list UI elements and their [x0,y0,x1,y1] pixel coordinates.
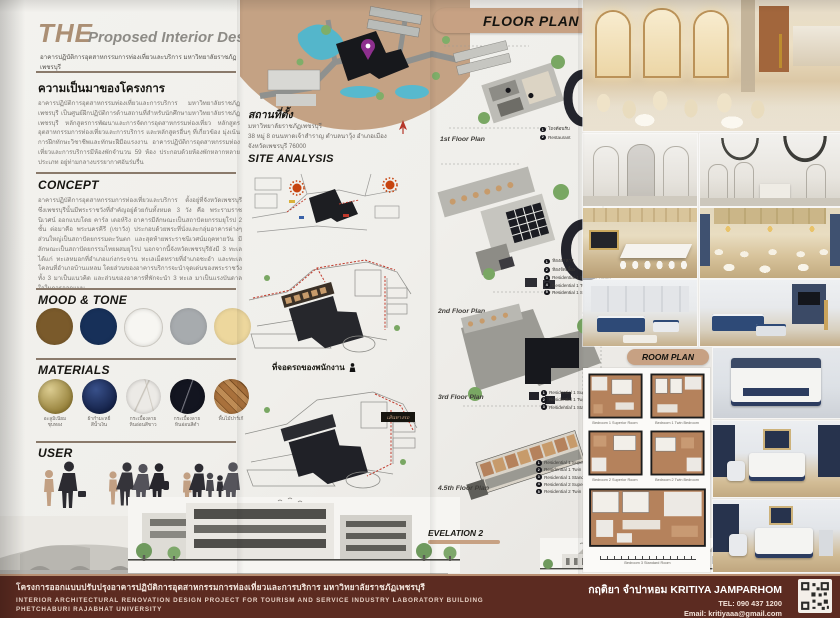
footer-email: Email: kritiyaaa@gmail.com [588,609,782,618]
room-plan-caption: Bedroom 1 Twin Bedroom [648,421,706,425]
arch-shape [597,12,629,76]
scale-bar [600,556,696,560]
coffered-ceiling [583,208,697,222]
armchair [653,320,679,332]
banquet-tables [706,242,834,276]
w wall-panels [591,286,689,312]
site-analysis-map-sun [247,170,405,240]
wire-chandelier [780,136,830,166]
footer-author: กฤติยา จำปาหอม KRITIYA JAMPARHOM [588,581,782,598]
mood-swatch [124,308,163,347]
arch-outline [663,146,689,197]
arch-shape [695,12,727,76]
section-materials-heading: MATERIALS [38,363,110,377]
material-item: กระเบื้องลาย หินอ่อนสีดำ [168,379,206,430]
section-user-heading: USER [38,446,73,460]
render-living-room-photo-1 [583,280,697,346]
section-background-heading: ความเป็นมาของโครงการ [38,80,165,98]
route-label: เส้นทางรถ [387,414,410,421]
wall-art [765,431,789,448]
render-bed-closeup-photo [713,348,840,418]
material-label: พื้นไม้ปาร์เก้ [219,417,244,423]
floor-strip [583,196,697,206]
headboard [731,358,821,368]
navy-wall [818,425,840,477]
armchair [756,324,786,336]
mood-swatch [80,308,117,345]
render-ballroom-photo [700,208,840,278]
wall-art [771,508,791,523]
divider [36,358,236,360]
render-living-room-photo-2 [700,280,840,346]
elevation-2-underline [428,540,500,544]
arch-outline [806,164,826,199]
wire-chandelier [718,138,762,164]
poster-board: THE Proposed Interior Design Project อาค… [0,0,840,618]
material-label: อะลูมิเนียม ชุบทอง [44,417,66,430]
location-heading: สถานที่ตั้ง [248,106,293,123]
floor-lamp [824,300,828,330]
bed [755,528,813,558]
title-the: THE [38,18,93,49]
material-label: กระเบื้องลาย หินอ่อนสีดำ [174,417,200,430]
footer-right: กฤติยา จำปาหอม KRITIYA JAMPARHOM TEL: 09… [588,581,782,618]
north-arrow-icon [398,120,408,134]
armchair [729,534,747,556]
section-concept-body: อาคารปฏิบัติการอุตสาหกรรมการท่องเที่ยวแล… [38,196,242,294]
candelabra [779,34,782,68]
site-analysis-map-customer: เส้นทางรถ [243,378,421,498]
tv-screen [589,230,619,250]
chandeliers [710,224,830,234]
material-swatch-white-marble [126,379,161,414]
render-bedroom-photo-2 [713,500,840,572]
mood-swatch [170,308,207,345]
material-swatch-velvet [82,379,117,414]
material-label: ผ้ากำมะหยี่ สีน้ำเงิน [88,417,111,430]
title-subtitle: อาคารปฏิบัติการอุตสาหกรรมการท่องเที่ยวแล… [40,52,250,72]
materials-swatches: อะลูมิเนียม ชุบทอง ผ้ากำมะหยี่ สีน้ำเงิน… [36,379,250,430]
caption-staff-text: ที่จอดรถของพนักงาน [272,361,345,374]
room-plan-3 [588,430,643,476]
material-label: กระเบื้องลาย หินอ่อนสีขาว [129,417,156,430]
room-plan-caption: Bedroom 1 Superior Room [586,421,644,425]
divider [36,441,236,443]
footer-project-title-en: INTERIOR ARCHITECTURAL RENOVATION DESIGN… [16,597,556,604]
render-hall-photo [700,134,840,206]
elevation-2-label: EVELATION 2 [428,528,500,538]
reception-desk [760,184,790,198]
room-plan-1 [588,373,643,419]
ceiling-coffers [714,208,826,224]
site-analysis-heading: SITE ANALYSIS [248,153,334,165]
arch-outline [627,144,655,199]
room-plan-wide [588,488,707,552]
material-item: อะลูมิเนียม ชุบทอง [36,379,74,430]
tv-screen [798,292,820,305]
arch-outline [708,164,728,199]
material-swatch-gold [38,379,73,414]
render-meeting-room-photo [583,208,697,278]
floor-plan-1-label: 1st Floor Plan [440,136,485,143]
floor-plan-3-label: 3rd Floor Plan [438,394,484,401]
mood-tone-swatches [36,308,251,347]
armchair [727,461,745,481]
footer-bar: โครงการออกแบบปรับปรุงอาคารปฏิบัติการอุตส… [0,574,840,618]
render-restaurant-photo [583,0,840,131]
section-mood-heading: MOOD & TONE [38,293,127,307]
people-silhouette-business [38,459,100,515]
divider [36,288,236,290]
qr-code [798,579,832,613]
chairs-row [617,258,693,272]
footer-university: PHETCHABURI RAJABHAT UNIVERSITY [16,606,556,613]
arch-outline [593,146,619,197]
footer-left: โครงการออกแบบปรับปรุงอาคารปฏิบัติการอุตส… [16,581,556,613]
elevation-1-drawing [128,497,460,573]
coffee-table [623,335,657,343]
arch-shape [645,10,679,76]
divider [36,71,236,73]
material-item: ผ้ากำมะหยี่ สีน้ำเงิน [80,379,118,430]
caption-staff-parking: ที่จอดรถของพนักงาน [272,361,357,374]
room-plan-4 [650,430,705,476]
section-background-body: อาคารปฏิบัติการอุตสาหกรรมท่องเที่ยวและกา… [38,99,240,167]
location-address: มหาวิทยาลัยราชภัฏเพชรบุรี 38 หมู่ 8 ถนนห… [248,122,398,152]
mood-swatch [214,308,251,345]
render-lobby-photo [583,134,697,206]
footer-tel: TEL: 090 437 1200 [588,599,782,608]
section-concept-heading: CONCEPT [38,178,99,192]
floor-plan-4-label: 4.5th Floor Plan [438,485,489,492]
dining-tables [583,77,840,131]
site-analysis-map-staff [247,248,415,358]
footer-project-title-th: โครงการออกแบบปรับปรุงอาคารปฏิบัติการอุตส… [16,581,556,594]
material-swatch-black-marble [170,379,205,414]
material-item: กระเบื้องลาย หินอ่อนสีขาว [124,379,162,430]
bed [749,453,805,481]
dresser [819,530,833,556]
elevation-2-banner: EVELATION 2 [428,528,500,544]
sofa [597,316,645,332]
room-plan-banner: ROOM PLAN [627,349,709,365]
floor-strip [700,198,840,206]
mood-swatch [36,308,73,345]
room-plan-caption: Bedroom 2 Superior Room [586,478,644,482]
render-bedroom-photo-1 [713,421,840,497]
conference-table [620,244,692,258]
person-icon [348,363,357,372]
arch-outline [734,162,754,199]
room-plan-caption: Bedroom 2 Twin Bedroom [648,478,706,482]
room-plan-2 [650,373,705,419]
room-plan-caption: Bedroom 3 Standard Room [588,561,707,565]
orange-wall [759,6,789,72]
bed-runner [743,388,809,396]
bar-counter [793,26,840,66]
divider [36,172,236,174]
